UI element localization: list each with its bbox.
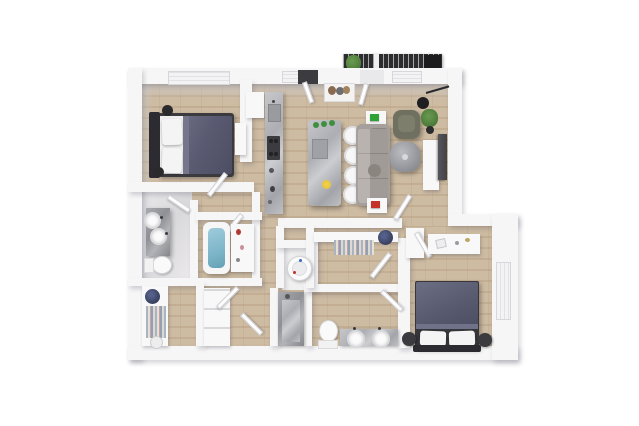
living-window (392, 71, 422, 83)
shower-west-wall (270, 288, 278, 346)
shower-floor (282, 300, 300, 342)
island-sink (312, 139, 328, 159)
north-wall-inner-face (140, 84, 448, 100)
sofa-back-cushions (358, 128, 370, 203)
bedside-accent (162, 105, 173, 116)
bedroom2-nightstand (402, 332, 416, 346)
floor-lamp-shade (417, 97, 429, 109)
wall-art-leaves (343, 86, 350, 94)
toiletry (240, 245, 244, 250)
mid-horizontal-wall (128, 278, 262, 286)
island-plant (321, 121, 327, 127)
plant-pot (426, 126, 434, 134)
bedroom1-dresser (235, 123, 246, 155)
kitchen-sink (268, 104, 281, 122)
closet2-south-wall (304, 284, 404, 292)
washer-control-red (293, 271, 296, 274)
closet1-navy-basket (145, 289, 160, 304)
island-plant (313, 122, 319, 128)
tv-screen (438, 134, 447, 180)
living-south-wall (278, 218, 402, 228)
closet1-white-basket (150, 336, 163, 349)
tubroom-north-wall (196, 212, 262, 220)
bedroom1-south-wall (128, 182, 254, 192)
green-book (370, 114, 379, 121)
shower-east-wall (304, 290, 312, 346)
bed2-duvet (416, 282, 478, 329)
toiletry (236, 258, 240, 262)
burner (269, 139, 273, 143)
desk-decor (465, 238, 470, 242)
washer-control-blue (299, 259, 302, 262)
bedroom2-window (496, 262, 511, 320)
toilet2-tank (318, 340, 338, 349)
bathroom2-sink (372, 330, 390, 348)
bed1-pillow (162, 148, 183, 174)
desk-decor (455, 241, 459, 245)
counter-appliance (268, 200, 272, 204)
bed2-duvet-fold (416, 324, 478, 329)
wall-art-leaves (328, 86, 336, 95)
closet1-hanging-clothes (146, 306, 166, 338)
bathroom2-faucet (378, 327, 381, 330)
toilet1-bowl (152, 256, 172, 274)
counter-appliance (270, 186, 275, 192)
bed1-pillow (162, 119, 183, 146)
bathroom2-sink (347, 330, 365, 348)
coffee-table-decor (402, 154, 408, 160)
potted-plant (421, 109, 438, 127)
bathroom1-sink (150, 228, 167, 245)
entry-doorway (298, 70, 318, 84)
bed1-duvet (183, 116, 232, 174)
bathroom1-faucet (160, 216, 163, 219)
burner (274, 152, 278, 156)
bedroom1-window (168, 71, 230, 85)
toilet2-bowl (319, 320, 338, 342)
bathroom1-sink (144, 212, 161, 229)
burner (269, 152, 273, 156)
sofa-throw (368, 164, 381, 177)
burner (274, 139, 278, 143)
island-plant (329, 120, 335, 126)
floor-plan-render (0, 0, 639, 426)
bathroom2-faucet (353, 327, 356, 330)
armchair-seat (398, 115, 415, 132)
shower-head (285, 294, 290, 299)
refrigerator (246, 92, 264, 118)
tv-console (423, 140, 439, 190)
west-outer-wall (128, 68, 142, 360)
kitchen-faucet (272, 100, 275, 103)
closet2-west-wall (306, 226, 314, 288)
bed1-duvet-fold (183, 116, 189, 174)
red-book (371, 201, 380, 208)
closet2-navy-basket (378, 230, 393, 245)
counter-appliance (269, 168, 274, 173)
bathtub-basin (208, 228, 225, 268)
utility-closet-west-wall (276, 226, 284, 288)
bathroom1-faucet (165, 232, 168, 235)
closet1-east-wall (196, 282, 204, 346)
toilet1-tank (144, 258, 154, 273)
bedside-accent (154, 167, 164, 177)
bed2-headboard (413, 345, 481, 352)
closet2-hanging-clothes (334, 240, 374, 255)
bedroom2-nightstand (478, 333, 492, 347)
east-living-wall (448, 68, 462, 218)
kitchen-island (308, 120, 341, 206)
toiletry (236, 229, 241, 235)
yellow-flowers (322, 180, 331, 189)
